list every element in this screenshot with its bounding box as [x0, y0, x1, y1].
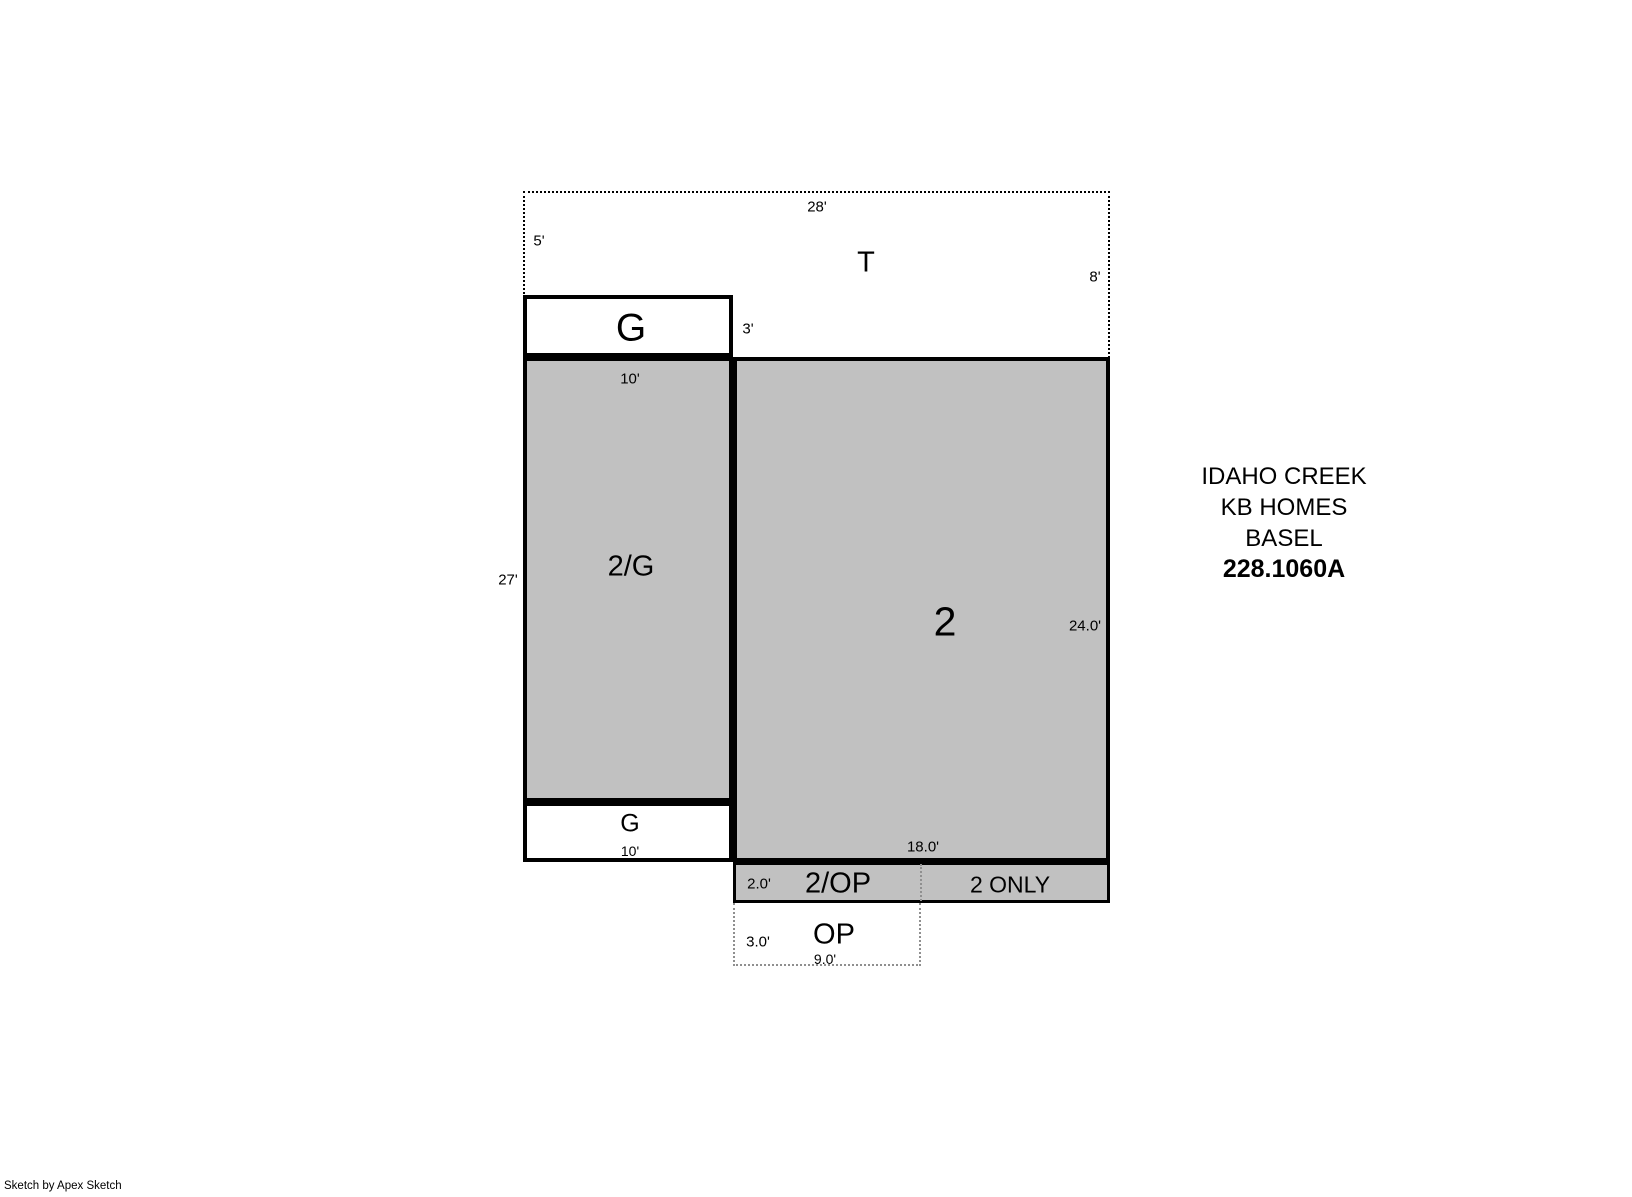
- dim-garage-bottom: 10': [621, 844, 639, 858]
- sketch-canvas: 28' 5' T 8' G 3' 10' 27' 2/G 2 24.0' 18.…: [0, 0, 1632, 1197]
- area-label-2g: 2/G: [608, 553, 655, 582]
- dim-2op-left: 2.0': [747, 877, 771, 892]
- dim-op-left: 3.0': [746, 935, 770, 950]
- title-block: IDAHO CREEK KB HOMES BASEL 228.1060A: [1201, 461, 1366, 585]
- area-2-outline: [733, 357, 1110, 862]
- dim-t-right: 8': [1089, 270, 1100, 285]
- area-label-2op: 2/OP: [805, 870, 871, 899]
- dim-2-right: 24.0': [1069, 619, 1101, 634]
- dim-t-left: 5': [533, 234, 544, 249]
- title-line-subdivision: IDAHO CREEK: [1201, 461, 1366, 492]
- area-label-2only: 2 ONLY: [970, 874, 1050, 897]
- title-line-builder: KB HOMES: [1201, 492, 1366, 523]
- area-label-2: 2: [934, 602, 957, 643]
- area-label-t: T: [857, 249, 875, 278]
- dim-garage-top-right: 3': [742, 322, 753, 337]
- title-line-plan-number: 228.1060A: [1201, 554, 1366, 585]
- area-label-op: OP: [813, 921, 855, 950]
- dim-op-bottom: 9.0': [814, 952, 836, 966]
- dim-2g-left: 27': [498, 573, 518, 588]
- dim-2g-top: 10': [620, 372, 640, 387]
- title-line-plan: BASEL: [1201, 523, 1366, 554]
- dim-t-width: 28': [807, 200, 827, 215]
- area-label-garage-top: G: [616, 309, 646, 348]
- strip-divider-dotted-line: [920, 864, 922, 901]
- footer-credit: Sketch by Apex Sketch: [4, 1180, 122, 1192]
- dim-2-bottom: 18.0': [907, 840, 939, 855]
- area-label-garage-bottom: G: [620, 812, 639, 837]
